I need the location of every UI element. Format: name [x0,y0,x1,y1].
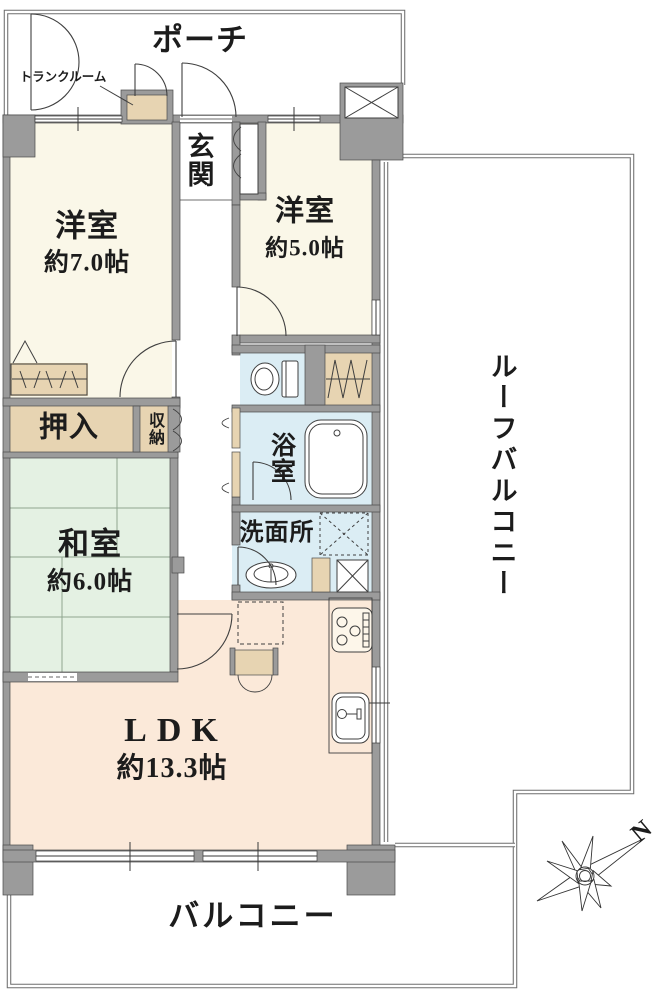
stove-icon [332,608,372,652]
roof-balcony-label: ルーフバルコニー [488,352,515,600]
western-room-7-size: 約7.0帖 [44,251,130,276]
trunk-room-box [127,95,167,120]
pipe-space-box [337,560,368,592]
porch-double-door [31,14,79,110]
ldk-size: 約13.3帖 [116,755,227,783]
porch-label: ポーチ [152,25,248,56]
washroom-label: 洗面所 [240,521,315,545]
entrance-label: 玄関 [185,132,212,188]
oshiire-label: 押入 [39,414,99,443]
trunk-room-label: トランクルーム [20,71,107,84]
kitchen-sink-icon [332,693,369,743]
western-room-7-label: 洋室 [55,211,119,242]
shoe-cabinet [240,124,258,194]
japanese-room-size: 約6.0帖 [47,570,133,595]
bathtub-icon [305,420,367,498]
floor-plan-drawing [0,0,666,1000]
western-room-5-label: 洋室 [275,198,335,227]
japanese-room-label: 和室 [58,529,122,560]
compass-icon [537,836,645,911]
bathroom-label: 浴室 [269,432,294,484]
ldk-label: LDK [124,714,228,748]
floor-plan: ポーチ トランクルーム 玄関 洋室 約7.0帖 洋室 約5.0帖 押入 収納 和… [0,0,666,1000]
entrance-door [182,63,236,117]
balcony-label: バルコニー [168,901,337,932]
corridor-door-chevrons [222,418,229,493]
shunou-label: 収納 [146,412,162,446]
japanese-room-floor [10,458,170,672]
shaft-x-box [345,87,398,118]
ldk-cupboard [235,650,273,675]
western-room-5-size: 約5.0帖 [265,237,345,260]
